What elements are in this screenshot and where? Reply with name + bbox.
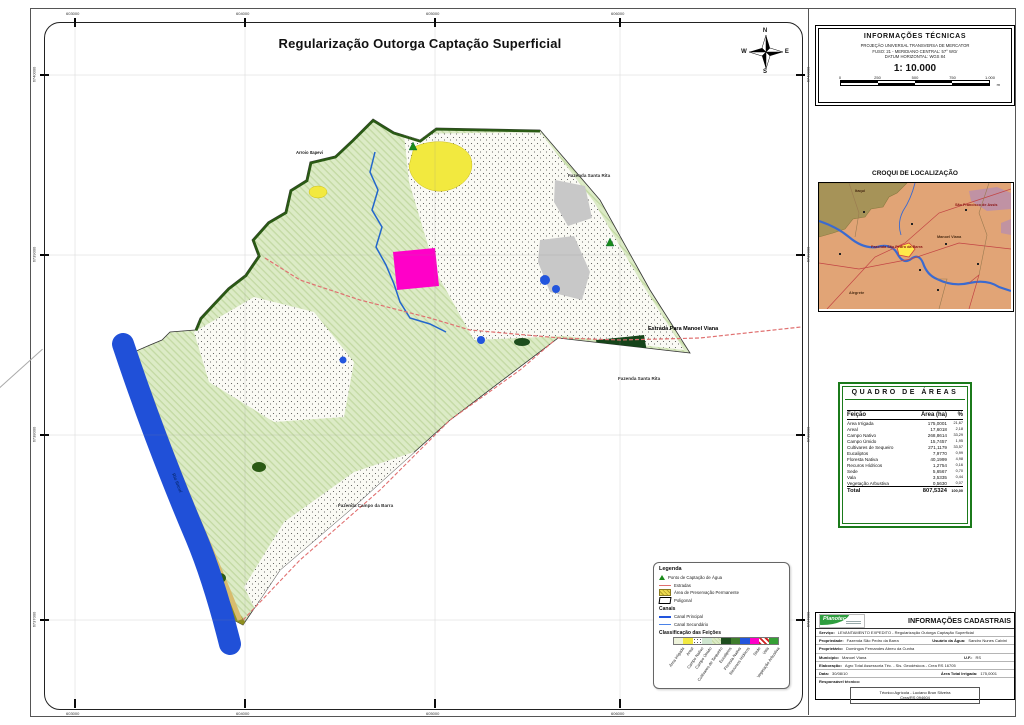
fazenda-label: Fazenda Santa Rita [568, 173, 610, 178]
legend-item: Canal Principal [659, 613, 784, 621]
legend-classificacao-title: Classificação das Feições [659, 630, 784, 636]
canal-secundario-icon [659, 624, 671, 625]
area-cell: 807,5324 [911, 487, 947, 495]
scale-label: 0 [839, 75, 841, 80]
field-value: Sandro Nunes Calvini [968, 638, 1007, 643]
logo-tagline-bar [846, 621, 861, 622]
coord-label: 606000 [611, 711, 624, 716]
scale-label: 250 [874, 75, 881, 80]
classification-swatch [702, 638, 711, 644]
informacoes-tecnicas-box: INFORMAÇÕES TÉCNICAS PROJEÇÃO UNIVERSAL … [815, 25, 1015, 106]
field-value: 175,0001 [980, 671, 997, 676]
classification-swatch [740, 638, 749, 644]
cadastral-row: Responsável técnico: [816, 678, 1014, 685]
field-label: Propriedade: [819, 638, 844, 643]
cadastral-row: Proprietário: Domingos Fernandes Abreu d… [816, 645, 1014, 653]
scale-bar-labels: 0 250 500 750 1.000 [840, 75, 990, 80]
logo-name: Planotec [823, 616, 846, 622]
recurso-hidrico [552, 285, 560, 293]
field-label: Município: [819, 655, 839, 660]
coord-label: 6740000 [805, 67, 810, 83]
croqui-map: Itaqui São Francisco de Assis Manoel Via… [818, 182, 1014, 312]
col-header: % [947, 411, 963, 420]
classification-swatch [693, 638, 702, 644]
classification-swatch [683, 638, 692, 644]
coord-label: 605000 [426, 711, 439, 716]
croqui-label: Alegrete [849, 291, 864, 295]
cadastral-row: Serviço: LEVANTAMENTO EXPEDITO - Regular… [816, 629, 1014, 637]
legend-item-label: Área de Preservação Permanente [674, 590, 739, 595]
coord-label: 6738000 [31, 427, 36, 443]
captacao-point-icon [659, 575, 665, 580]
map-sheet: 603000 604000 605000 606000 603000 60400… [0, 0, 1024, 725]
field-value: Manoel Viana [842, 655, 960, 660]
recurso-hidrico [477, 336, 485, 344]
scale-label: 750 [949, 75, 956, 80]
legend-item: Área de Preservação Permanente [659, 589, 784, 597]
classification-labels: Área IrrigadaArealCampo NativoCampo Úmid… [673, 645, 784, 685]
legend-item: Poligonal [659, 597, 784, 605]
cadastral-row: Município: Manoel Viana U.F.: RS [816, 654, 1014, 662]
col-header: Área (ha) [911, 411, 947, 420]
road-label: Estrada Para Manoel Viana [648, 326, 718, 332]
col-header: Feição [847, 411, 911, 420]
field-value: RS [975, 655, 981, 660]
areal-patch [309, 186, 327, 198]
scale-label: 1.000 [985, 75, 995, 80]
canal-principal-icon [659, 616, 671, 618]
scale-bar: 0 250 500 750 1.000 m [840, 75, 990, 86]
quadro-de-areas: QUADRO DE ÁREAS Feição Área (ha) % Área … [838, 382, 972, 528]
croqui-label: Manoel Viana [937, 235, 961, 239]
total-row: Total 807,5324 100,00 [847, 487, 963, 495]
planotec-logo: Planotec [819, 614, 865, 628]
legend-item-label: Poligonal [674, 598, 692, 603]
polygon-swatch-icon [659, 597, 672, 604]
field-label: Data: [819, 671, 829, 676]
cadastral-header: Planotec INFORMAÇÕES CADASTRAIS [816, 613, 1014, 629]
fazenda-label: Fazenda Santa Rita [618, 376, 660, 381]
areas-table: Feição Área (ha) % Área Irrigada 175,000… [847, 410, 963, 494]
field-label: Proprietário: [819, 646, 843, 651]
scale-label: 500 [912, 75, 919, 80]
croqui-label: Fazenda São Pedro da Barra [871, 245, 923, 249]
cadastral-row: Propriedade: Fazenda São Pedro da Barra … [816, 637, 1014, 645]
field-label: Responsável técnico: [819, 679, 860, 684]
field-value: Agro Total Assessoria Téc. - Sis. Geodés… [845, 663, 1007, 668]
tech-title: INFORMAÇÕES TÉCNICAS [816, 33, 1014, 40]
road-swatch-icon [659, 585, 671, 586]
projection-line: DATUM HORIZONTAL: WGS 84 [816, 54, 1014, 60]
croqui-label: São Francisco de Assis [955, 203, 998, 207]
legend-canais-title: Canais [659, 606, 784, 612]
logo-tagline-bar [846, 623, 861, 624]
coord-label: 603000 [66, 711, 79, 716]
coord-label: 6737000 [31, 612, 36, 628]
field-value: Domingos Fernandes Abreu da Cunha [846, 646, 1007, 651]
pct-cell: 100,00 [947, 487, 963, 495]
field-value: 30/08/10 [832, 671, 937, 676]
coord-label: 604000 [236, 11, 249, 16]
classification-swatch [731, 638, 740, 644]
coord-label: 605000 [426, 11, 439, 16]
responsavel-footer: Técnico Agrícola - Luciano Brun Silveira… [850, 687, 980, 703]
cadastral-row: Data: 30/08/10 Área Total Irrigada: 175,… [816, 670, 1014, 678]
responsavel-crea: Crea/RS 094604 [851, 695, 979, 701]
legend-item-label: Canal Secundário [674, 622, 708, 627]
classification-swatch [769, 638, 778, 644]
cadastral-title: INFORMAÇÕES CADASTRAIS [908, 616, 1011, 625]
legend-item-label: Estradas [674, 583, 691, 588]
classification-swatch [721, 638, 730, 644]
scale-unit: m [997, 82, 1000, 87]
classification-swatch [674, 638, 683, 644]
coord-label: 6737000 [805, 612, 810, 628]
panel-divider [808, 8, 809, 715]
cadastral-row: Elaboração: Agro Total Assessoria Téc. -… [816, 662, 1014, 670]
legend-item: Ponto de Captação de Água [659, 574, 784, 582]
sede-patch [393, 248, 439, 290]
feicao-cell: Total [847, 487, 911, 495]
legend: Legenda Ponto de Captação de Água Estrad… [653, 562, 790, 689]
recurso-hidrico [540, 275, 550, 285]
map-scale: 1: 10.000 [816, 63, 1014, 74]
legend-item: Canal Secundário [659, 621, 784, 629]
field-label: Serviço: [819, 630, 835, 635]
classification-swatch [712, 638, 721, 644]
croqui-title: CROQUI DE LOCALIZAÇÃO [818, 170, 1012, 177]
classification-swatch [759, 638, 768, 644]
eucaliptos-patch [514, 338, 530, 346]
field-label: Elaboração: [819, 663, 842, 668]
field-value: Fazenda São Pedro da Barra [847, 638, 929, 643]
scale-bar-graphic [840, 80, 990, 86]
legend-title: Legenda [659, 566, 784, 572]
field-value: LEVANTAMENTO EXPEDITO - Regularização Ou… [838, 630, 1007, 635]
classification-swatch [750, 638, 759, 644]
legend-item-label: Ponto de Captação de Água [668, 575, 722, 580]
classification-strip [673, 637, 779, 645]
legend-item: Estradas [659, 582, 784, 590]
coord-label: 6740000 [31, 67, 36, 83]
coord-label: 6738000 [805, 427, 810, 443]
legend-item-label: Canal Principal [674, 614, 703, 619]
coord-label: 604000 [236, 711, 249, 716]
field-label: Área Total Irrigada: [941, 671, 977, 676]
coord-label: 603000 [66, 11, 79, 16]
coord-label: 6739000 [805, 247, 810, 263]
app-swatch-icon [659, 589, 671, 596]
coord-label: 606000 [611, 11, 624, 16]
croqui-label: Itaqui [855, 189, 865, 193]
coord-label: 6739000 [31, 247, 36, 263]
field-label: Usuário da Água: [932, 638, 965, 643]
floresta-blob [252, 462, 266, 472]
recurso-hidrico [340, 357, 347, 364]
areas-title: QUADRO DE ÁREAS [845, 389, 965, 400]
arroio-label: Arroio Itapevi [296, 150, 323, 155]
fazenda-label: Fazenda Campo da Barra [338, 503, 393, 508]
field-label: U.F.: [964, 655, 972, 660]
informacoes-cadastrais-box: Planotec INFORMAÇÕES CADASTRAIS Serviço:… [815, 612, 1015, 700]
